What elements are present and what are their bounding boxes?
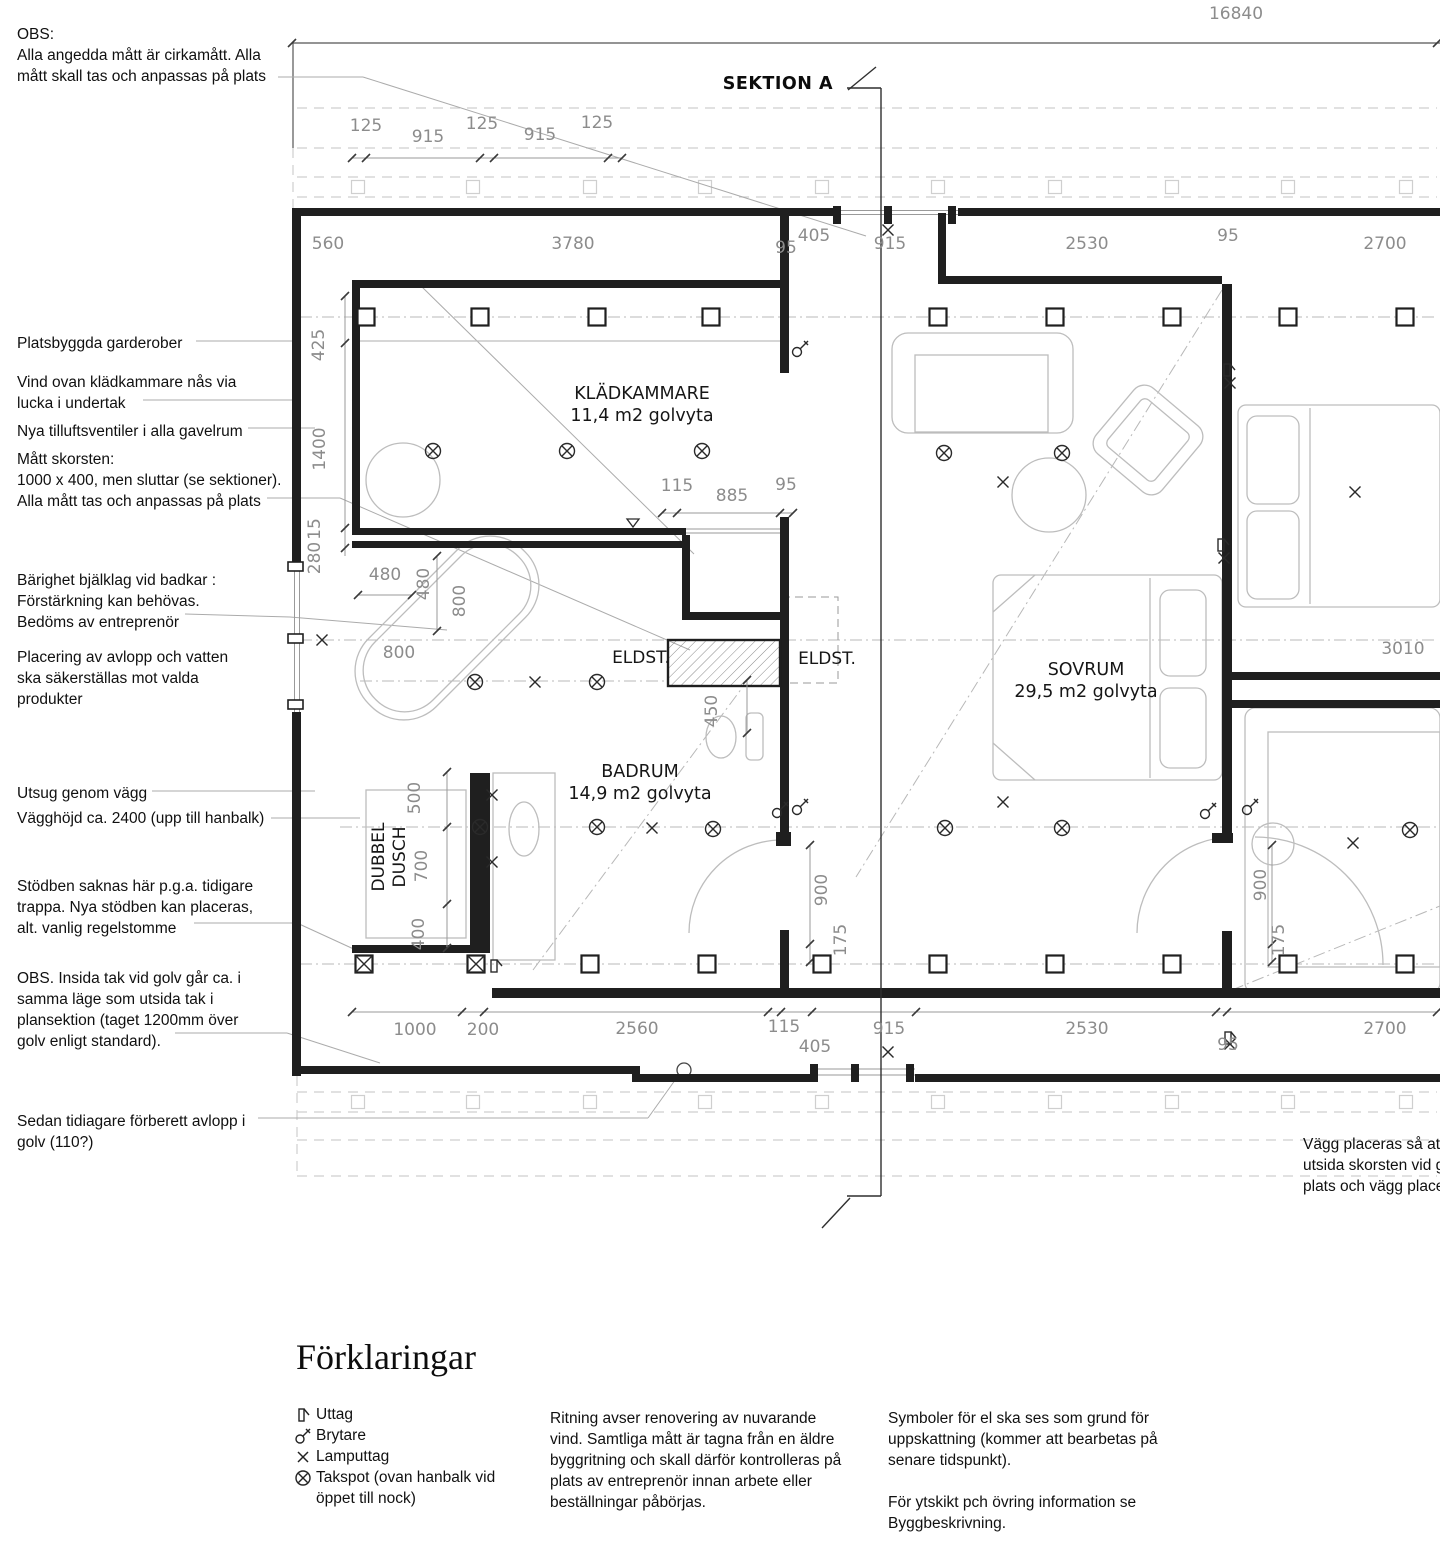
opening-jamb [851, 1064, 859, 1082]
post-square [589, 309, 606, 326]
roof-grid-square [584, 181, 597, 194]
dimension-label: 900 [812, 874, 832, 906]
dimension-label: 3010 [1381, 639, 1424, 659]
dimension-label: 95 [775, 475, 797, 495]
roof-grid-square [467, 181, 480, 194]
bathtub [336, 517, 558, 739]
lamputtag-icon [883, 1047, 894, 1058]
dimension-label: 200 [467, 1020, 499, 1040]
lamputtag-icon [647, 823, 658, 834]
walls [288, 206, 1440, 1082]
takspot-icon [938, 821, 953, 836]
leader-lines [143, 77, 866, 1118]
wall-stud [288, 700, 303, 709]
roof-grid-square [932, 1096, 945, 1109]
roof-grid-square [1282, 1096, 1295, 1109]
dimension-label: 280 [305, 542, 325, 574]
annotation-note-2: Platsbyggda garderober [17, 333, 182, 354]
takspot-icon [426, 444, 441, 459]
roof-grid-square [1049, 1096, 1062, 1109]
annotation-note-10: Stödben saknas här p.g.a. tidigaretrappa… [17, 876, 253, 939]
wall-stud [288, 562, 303, 571]
armchair [1087, 379, 1208, 500]
room-area: 14,9 m2 golvyta [568, 784, 711, 804]
wall-segment [492, 988, 1440, 998]
vent-triangle [627, 519, 639, 527]
wall-segment [292, 1066, 640, 1074]
wall-segment [292, 208, 301, 565]
wall-segment [682, 535, 690, 620]
takspot-icon [1055, 821, 1070, 836]
wall-segment [915, 1074, 1440, 1082]
dimension-label: 800 [450, 585, 470, 617]
post-square [1047, 956, 1064, 973]
opening-jamb [948, 206, 956, 224]
opening-jamb [833, 206, 841, 224]
annotation-note-7: Placering av avlopp och vattenska säkers… [17, 647, 228, 710]
dimension-label: 900 [1251, 869, 1271, 901]
post-square [1164, 956, 1181, 973]
plan-label: ELDST. [612, 648, 670, 668]
post-square-crossed [468, 956, 485, 973]
dimension-label: 405 [798, 226, 830, 246]
lamputtag-icon [294, 1448, 316, 1466]
legend-item-label: Takspot (ovan hanbalk vid [316, 1469, 495, 1487]
dimension-label: 2560 [615, 1019, 658, 1039]
dimension-label: 915 [524, 125, 556, 145]
takspot-icon [1403, 823, 1418, 838]
room-name: KLÄDKAMMARE [574, 383, 710, 404]
room-name: BADRUM [601, 762, 679, 782]
legend-item-uttag: Uttag [294, 1404, 495, 1425]
dimension-label: 95 [1217, 226, 1239, 246]
lamputtag-icon [998, 477, 1009, 488]
overall-dim-frame [288, 39, 1440, 148]
roof-grid-square [816, 1096, 829, 1109]
dimension-label: 125 [350, 116, 382, 136]
roof-grid-square [467, 1096, 480, 1109]
takspot-icon [695, 444, 710, 459]
post-square [1280, 956, 1297, 973]
dimension-label: 700 [412, 850, 432, 882]
floor-plan: 1684012591512591512556037809540591525309… [0, 0, 1440, 1544]
legend-item-label: Uttag [316, 1406, 353, 1424]
post-square [1280, 309, 1297, 326]
dimension-label: 480 [414, 568, 434, 600]
legend-item-takspot: Takspot (ovan hanbalk vid [294, 1467, 495, 1488]
lamputtag-icon [998, 797, 1009, 808]
roof-band-squares [352, 181, 1413, 1109]
roof-grid-square [699, 1096, 712, 1109]
roof-grid-square [1282, 181, 1295, 194]
bathroom-counter [493, 773, 555, 960]
dimension-label: 450 [702, 695, 722, 727]
legend-item-brytare: Brytare [294, 1425, 495, 1446]
dimension-label: 915 [874, 234, 906, 254]
wall-segment [1232, 700, 1440, 708]
dimension-label: 175 [831, 924, 851, 956]
dimension-label: 95 [775, 238, 797, 258]
wall-segment [1212, 833, 1233, 843]
takspot-icon [1055, 446, 1070, 461]
dimension-label: 480 [369, 565, 401, 585]
legend-item-label-cont: öppet till nock) [316, 1488, 495, 1509]
post-square [1047, 309, 1064, 326]
post-square [472, 309, 489, 326]
post-square [703, 309, 720, 326]
sink [509, 802, 539, 856]
wall-segment [352, 528, 686, 535]
wall-segment [632, 1066, 640, 1082]
wall-segment [958, 208, 1440, 216]
legend-title: Förklaringar [296, 1336, 476, 1378]
post-square [930, 309, 947, 326]
annotation-note-5: Mått skorsten:1000 x 400, men sluttar (s… [17, 449, 282, 512]
note-wall-placement: Vägg placeras så atutsida skorsten vid g… [1303, 1134, 1440, 1197]
post-square [1397, 309, 1414, 326]
roof-grid-square [1049, 181, 1062, 194]
legend-item-label: Lamputtag [316, 1448, 389, 1466]
room-name: SOVRUM [1048, 660, 1125, 680]
dimension-label: 115 [768, 1017, 800, 1037]
bed-right-top [1238, 405, 1440, 607]
plan-label: DUSCH [390, 827, 410, 888]
annotation-note-1: OBS:Alla angedda mått är cirkamått. Alla… [17, 24, 266, 87]
roof-grid-square [352, 1096, 365, 1109]
dimension-label: 115 [661, 476, 693, 496]
annotation-note-6: Bärighet bjälklag vid badkar :Förstärkni… [17, 570, 216, 633]
takspot-icon [560, 444, 575, 459]
roof-grid-square [1400, 1096, 1413, 1109]
post-square-crossed [356, 956, 373, 973]
uttag-icon [294, 1406, 316, 1424]
sofa [892, 333, 1073, 433]
fireplace-hatched [668, 640, 780, 686]
lamputtag-icon [530, 677, 541, 688]
dimension-label: 16840 [1209, 4, 1263, 24]
brytare-icon [1201, 803, 1217, 819]
roof-grid-square [816, 181, 829, 194]
room-area: 11,4 m2 golvyta [570, 406, 713, 426]
wall-segment [352, 280, 788, 288]
dimension-label: 175 [1269, 924, 1289, 956]
roof-grid-square [932, 181, 945, 194]
brytare-icon [793, 341, 809, 357]
uttag-icon [491, 960, 502, 972]
post-square [930, 956, 947, 973]
takspot-icon [468, 675, 483, 690]
round-table [1012, 458, 1086, 532]
annotation-note-12: Sedan tidiagare förberett avlopp igolv (… [17, 1111, 245, 1153]
dimension-label: 2530 [1065, 234, 1108, 254]
wall-segment [682, 612, 788, 620]
dimension-label: 1400 [310, 427, 330, 470]
dimension-label: 915 [412, 127, 444, 147]
opening-jamb [810, 1064, 818, 1082]
wall-segment [776, 832, 791, 846]
dimension-label: 15 [305, 518, 325, 540]
dimension-label: 95 [1217, 1035, 1239, 1055]
plan-label: ELDST. [798, 649, 856, 669]
dimension-label: 2530 [1065, 1019, 1108, 1039]
annotation-note-4: Nya tilluftsventiler i alla gavelrum [17, 421, 243, 442]
wall-segment [938, 276, 1222, 284]
roof-grid-square [1166, 1096, 1179, 1109]
roof-dashed-lines [293, 108, 1437, 1176]
legend-items: UttagBrytareLamputtagTakspot (ovan hanba… [294, 1404, 495, 1509]
dimension-label: 400 [409, 918, 429, 950]
dimension-label: 2700 [1363, 1019, 1406, 1039]
plan-label: DUBBEL [369, 822, 389, 892]
dimension-label: 800 [383, 643, 415, 663]
drawing-page: { "section": { "label": "SEKTION A" }, "… [0, 0, 1440, 1544]
lamputtag-icon [1350, 487, 1361, 498]
opening-jamb [906, 1064, 914, 1082]
annotation-note-3: Vind ovan klädkammare nås vialucka i und… [17, 372, 236, 414]
wall-segment [1232, 672, 1440, 680]
wall-segment [352, 541, 688, 548]
dimension-label: 425 [309, 329, 329, 361]
post-square [1164, 309, 1181, 326]
post-square [1397, 956, 1414, 973]
dimension-label: 560 [312, 234, 344, 254]
wall-stud [288, 634, 303, 643]
roof-grid-square [1400, 181, 1413, 194]
takspot-icon [706, 822, 721, 837]
room-area: 29,5 m2 golvyta [1014, 682, 1157, 702]
post-square [699, 956, 716, 973]
note-text-block-2: Symboler för el ska ses som grund förupp… [888, 1408, 1158, 1534]
dimension-label: 405 [799, 1037, 831, 1057]
wall-segment [640, 1074, 812, 1082]
door-arc-badrum [689, 840, 782, 933]
roof-grid-square [352, 181, 365, 194]
wall-segment [780, 517, 789, 832]
annotation-note-11: OBS. Insida tak vid golv går ca. isamma … [17, 968, 241, 1052]
post-square [358, 309, 375, 326]
brytare-icon [294, 1427, 316, 1445]
dimension-label: 1000 [393, 1020, 436, 1040]
post-square [814, 956, 831, 973]
kladkammare-chair [366, 443, 440, 517]
post-square [582, 956, 599, 973]
note-text-block-1: Ritning avser renovering av nuvarandevin… [550, 1408, 841, 1513]
opening-jamb [884, 206, 892, 224]
lamputtag-icon [1348, 838, 1359, 849]
dimension-label: 125 [581, 113, 613, 133]
wall-segment [1222, 931, 1232, 988]
dimension-label: 125 [466, 114, 498, 134]
takspot-icon [937, 446, 952, 461]
dimension-label: 2700 [1363, 234, 1406, 254]
wall-segment [292, 208, 838, 216]
legend-item-label: Brytare [316, 1427, 366, 1445]
roof-grid-square [584, 1096, 597, 1109]
legend-item-lamputtag: Lamputtag [294, 1446, 495, 1467]
dimension-label: 500 [405, 782, 425, 814]
door-arc-sovrum [1137, 837, 1233, 933]
dimension-label: 885 [716, 486, 748, 506]
annotation-note-8: Utsug genom vägg [17, 783, 147, 804]
dimension-label: 3780 [551, 234, 594, 254]
brytare-icon [793, 799, 809, 815]
dimension-label: 915 [873, 1019, 905, 1039]
wall-segment [292, 712, 301, 1076]
wall-segment [938, 213, 946, 276]
takspot-icon [590, 675, 605, 690]
furniture-layer [336, 333, 1440, 993]
roof-grid-square [1166, 181, 1179, 194]
annotation-note-9: Vägghöjd ca. 2400 (upp till hanbalk) [17, 808, 264, 829]
wall-segment [780, 930, 789, 988]
takspot-icon [294, 1469, 316, 1487]
section-label: SEKTION A [723, 74, 833, 94]
